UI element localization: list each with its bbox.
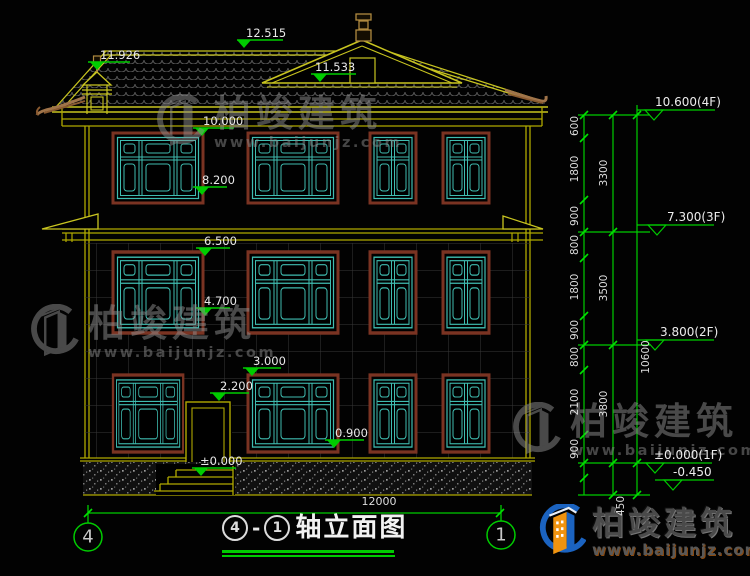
level-sill-3f: 8.200 (202, 174, 235, 187)
brand-logo: 柏竣建筑 www.baijunjz.com (534, 504, 750, 562)
mid-eave-band (42, 214, 543, 242)
windows-3f (113, 133, 489, 203)
floor-level-markers (637, 110, 715, 490)
drawing-title: 4 - 1 轴立面图 (222, 515, 407, 541)
gable-finial (356, 14, 371, 41)
floor-level-below: -0.450 (673, 466, 712, 479)
floor-level-3f: 7.300(3F) (667, 211, 725, 224)
floor-level-1f: ±0.000(1F) (654, 449, 722, 462)
title-axis-start: 4 (222, 515, 248, 541)
dim-segment: 2100 (569, 389, 581, 416)
dim-segment: 1800 (569, 274, 581, 301)
dim-floor: 3300 (598, 160, 610, 187)
dim-segment: 900 (569, 320, 581, 340)
title-text: 轴立面图 (295, 515, 407, 541)
floor-level-2f: 3.800(2F) (660, 326, 718, 339)
dim-foundation: 450 (615, 496, 627, 516)
level-ground: ±0.000 (200, 455, 243, 468)
dim-width: 12000 (362, 495, 397, 508)
level-ridge: 12.515 (246, 27, 286, 40)
dim-floor: 3800 (598, 391, 610, 418)
dim-total: 10600 (640, 340, 652, 373)
level-door-top: 2.200 (220, 380, 253, 393)
axis-bubble-right: 1 (495, 525, 506, 546)
title-underline-2 (222, 555, 395, 557)
ground-plinth (80, 458, 535, 495)
level-eave: 10.000 (203, 115, 243, 128)
dim-segment: 900 (569, 439, 581, 459)
dim-segment: 900 (569, 206, 581, 226)
elevation-drawing-svg (0, 0, 750, 576)
floor-level-4f: 10.600(4F) (655, 96, 721, 109)
dimension-chain (578, 105, 650, 499)
brand-logo-site: www.baijunjz.com (592, 541, 750, 559)
title-axis-end: 1 (264, 515, 290, 541)
axis-bubble-left: 4 (82, 527, 93, 548)
level-window-top-1f: 3.000 (253, 355, 286, 368)
title-underline (222, 550, 394, 553)
dim-floor: 3500 (598, 275, 610, 302)
level-sill-2f: 4.700 (204, 295, 237, 308)
dim-segment: 600 (569, 116, 581, 136)
title-dash: - (252, 516, 260, 540)
cad-elevation-canvas: 12.515 11.926 11.533 10.000 8.200 6.500 … (0, 0, 750, 576)
dim-segment: 800 (569, 235, 581, 255)
dim-segment: 1800 (569, 156, 581, 183)
dim-segment: 800 (569, 347, 581, 367)
level-sill-1f: 0.900 (335, 427, 368, 440)
level-band-2f: 6.500 (204, 235, 237, 248)
level-gable: 11.533 (315, 61, 355, 74)
brand-logo-icon (534, 504, 586, 562)
level-left-finial: 11.926 (100, 49, 140, 62)
